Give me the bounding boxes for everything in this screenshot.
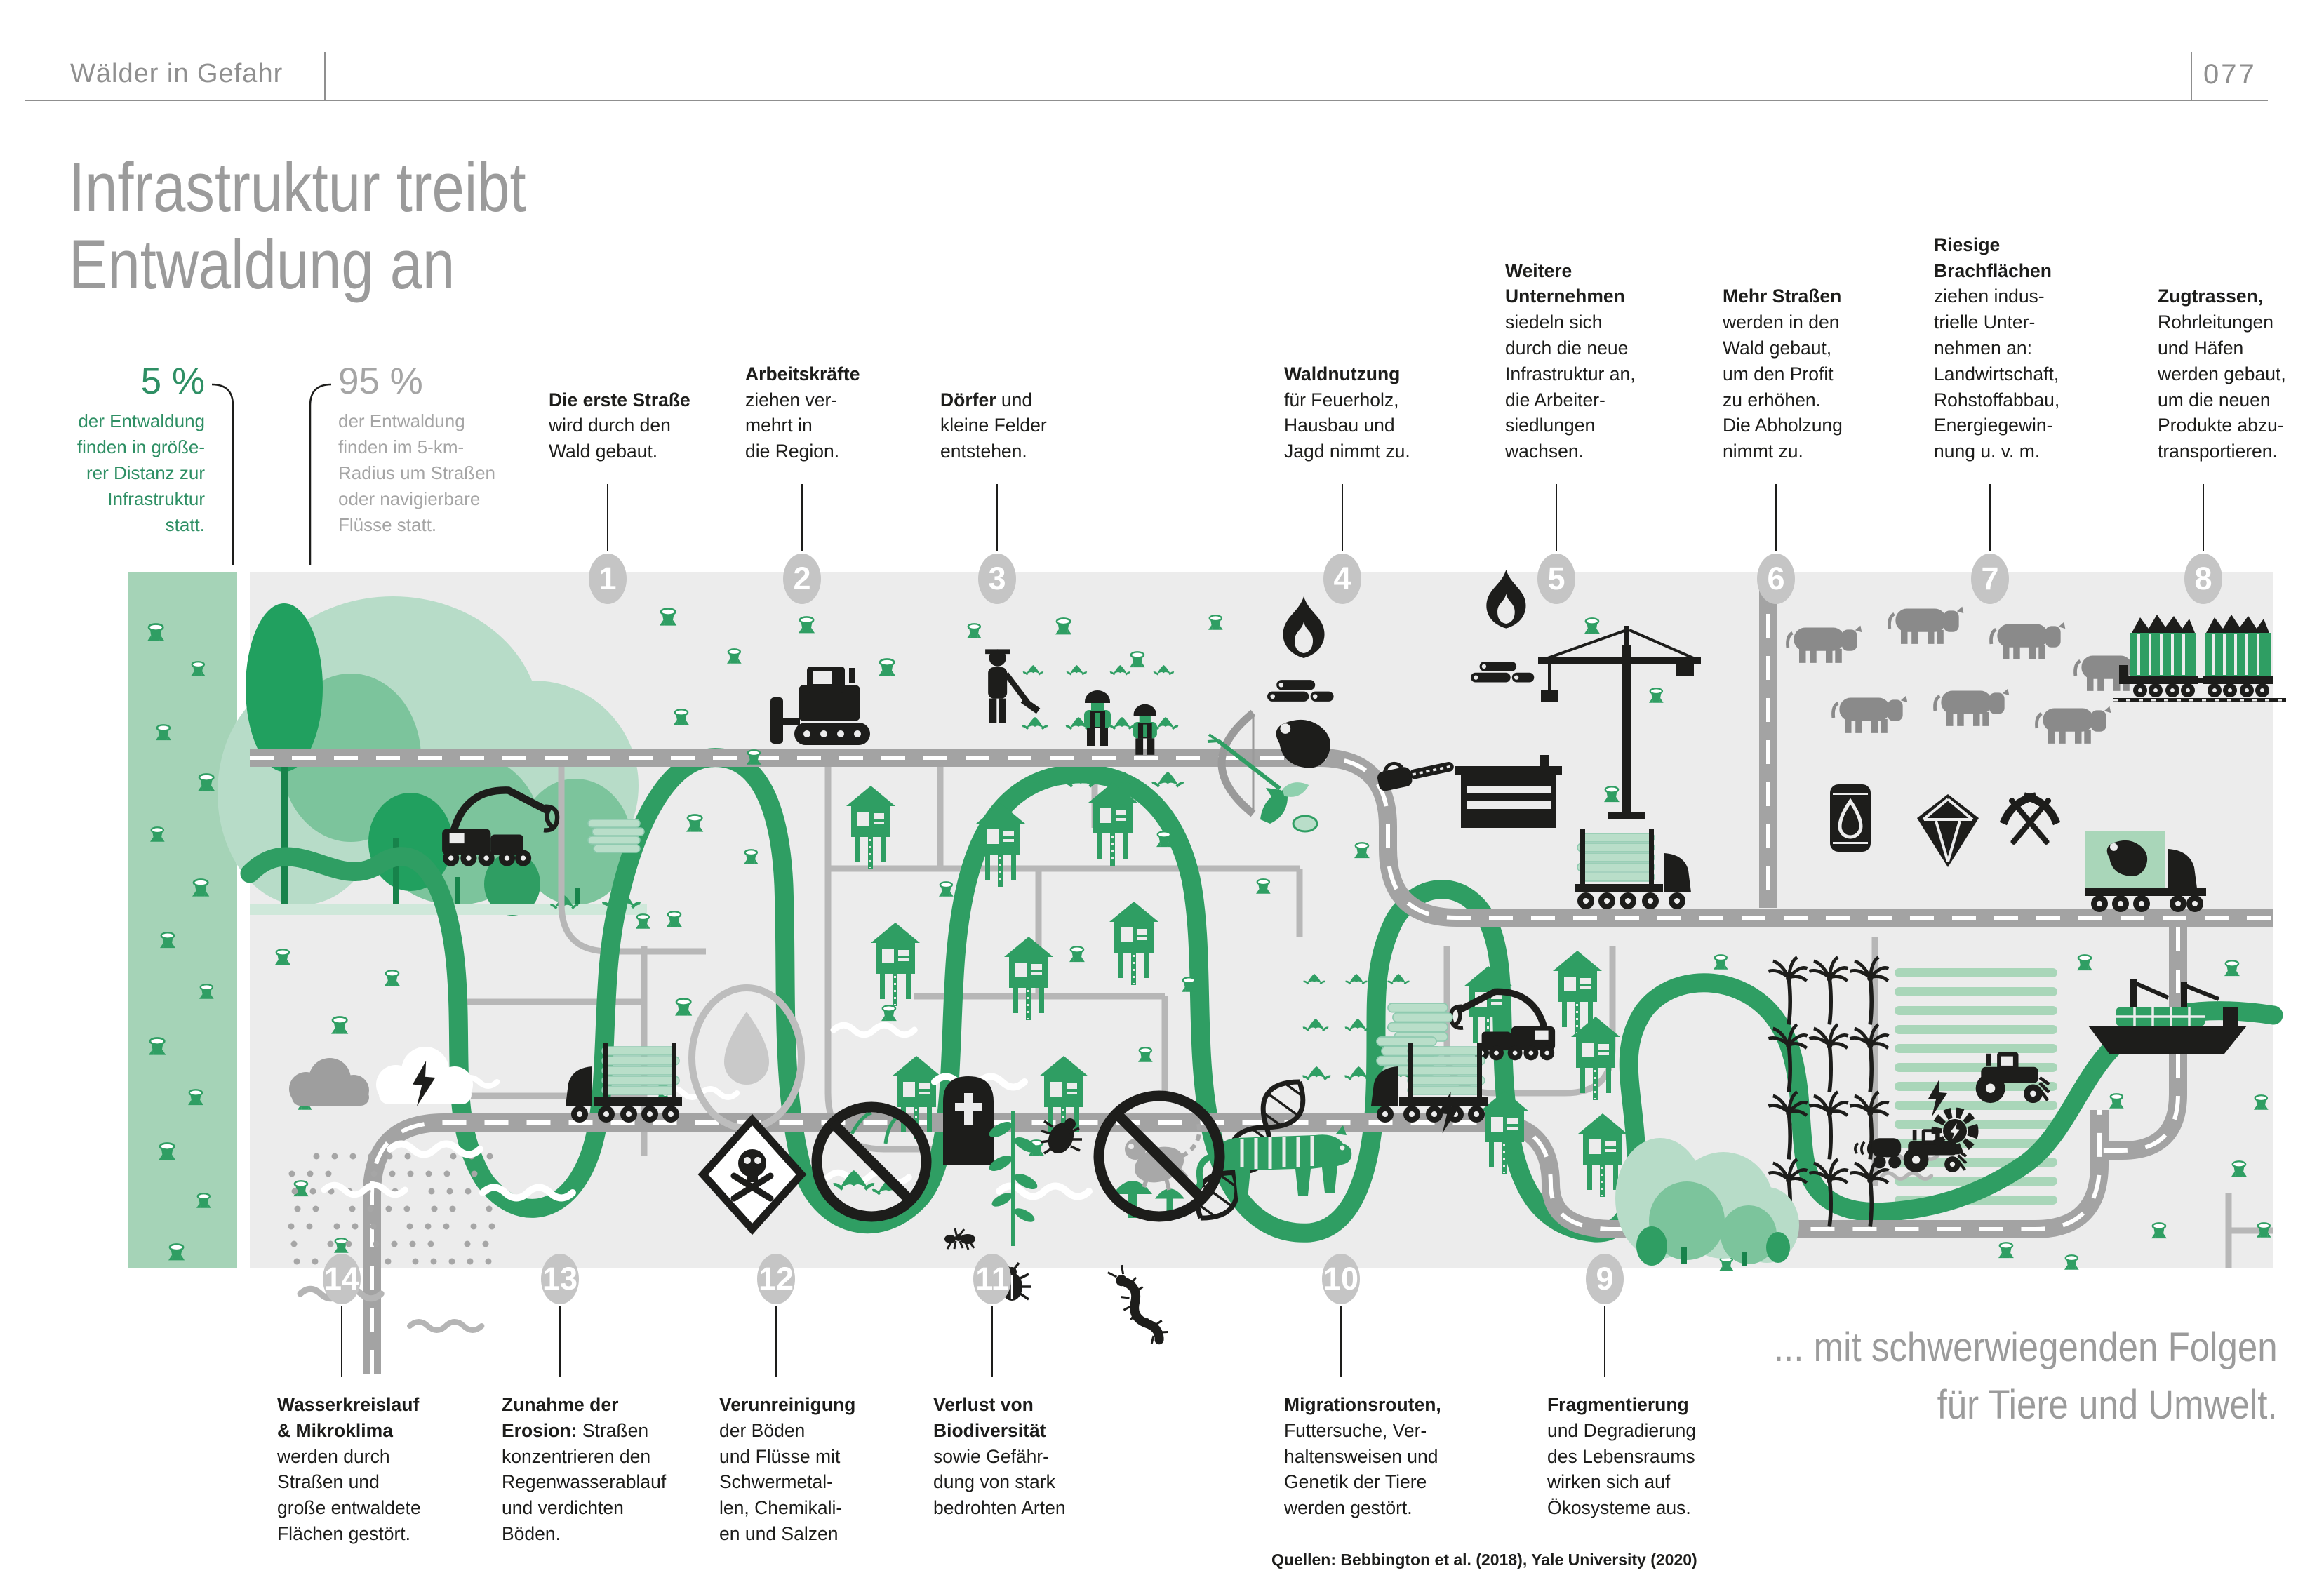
header-divider — [324, 52, 326, 101]
step-note-7: RiesigeBrachflächenziehen indus-trielle … — [1934, 232, 2059, 464]
step-connector-7 — [1989, 484, 1991, 551]
step-connector-3 — [996, 484, 998, 551]
stat-value: 95 % — [338, 362, 535, 401]
closing-line: für Tiere und Umwelt. — [1774, 1377, 2278, 1434]
header-divider — [2191, 52, 2192, 101]
oil-barrel-icon — [1830, 784, 1871, 852]
step-badge-12: 12 — [757, 1254, 795, 1304]
title-line: Infrastruktur treibt — [69, 149, 526, 226]
step-badge-11: 11 — [973, 1254, 1011, 1304]
step-note-4: Waldnutzungfür Feuerholz,Hausbau undJagd… — [1284, 361, 1410, 464]
step-connector-14 — [341, 1306, 342, 1377]
step-note-9: Fragmentierungund Degradierungdes Lebens… — [1547, 1392, 1696, 1521]
step-badge-4: 4 — [1323, 554, 1361, 604]
gravestone-icon — [943, 1076, 994, 1165]
step-note-10: Migrationsrouten,Futtersuche, Ver-halten… — [1284, 1392, 1441, 1521]
step-connector-12 — [775, 1306, 777, 1377]
cut-logs-icon — [1388, 1003, 1452, 1041]
source-note: Quellen: Bebbington et al. (2018), Yale … — [1271, 1551, 1697, 1569]
step-badge-9: 9 — [1586, 1254, 1624, 1304]
step-badge-7: 7 — [1971, 554, 2009, 604]
step-note-8: Zugtrassen,Rohrleitungenund Häfenwerden … — [2158, 283, 2286, 464]
step-badge-5: 5 — [1537, 554, 1575, 604]
stat-value: 5 % — [36, 362, 205, 401]
closing-statement: ... mit schwerwiegenden Folgen für Tiere… — [1774, 1319, 2278, 1434]
header-rule — [25, 100, 2268, 101]
step-connector-13 — [559, 1306, 561, 1377]
step-badge-1: 1 — [589, 554, 627, 604]
title-line: Entwaldung an — [69, 226, 526, 303]
cut-logs-icon — [588, 819, 644, 852]
step-connector-6 — [1775, 484, 1777, 551]
step-note-2: Arbeitskräfteziehen ver-mehrt indie Regi… — [745, 361, 860, 464]
step-note-13: Zunahme derErosion: Straßenkonzentrieren… — [502, 1392, 666, 1547]
step-badge-2: 2 — [783, 554, 821, 604]
step-badge-3: 3 — [978, 554, 1016, 604]
step-badge-13: 13 — [541, 1254, 579, 1304]
page-title: Infrastruktur treibt Entwaldung an — [69, 149, 526, 303]
step-note-3: Dörfer undkleine Felderentstehen. — [940, 387, 1047, 464]
step-note-5: WeitereUnternehmensiedeln sichdurch die … — [1505, 258, 1636, 464]
stat-connectors — [212, 384, 331, 565]
step-connector-8 — [2203, 484, 2204, 551]
centipede-icon — [1107, 1258, 1170, 1350]
section-label: Wälder in Gefahr — [70, 59, 283, 89]
closing-line: ... mit schwerwiegenden Folgen — [1774, 1319, 2278, 1377]
step-note-1: Die erste Straßewird durch denWald gebau… — [549, 387, 690, 464]
stat-near-infrastructure: 95 % der Entwaldungfinden im 5-km-Radius… — [338, 362, 535, 538]
step-note-11: Verlust vonBiodiversitätsowie Gefähr-dun… — [933, 1392, 1066, 1521]
step-badge-14: 14 — [323, 1254, 361, 1304]
step-note-14: Wasserkreislauf& Mikroklimawerden durchS… — [277, 1392, 421, 1547]
stat-description: der Entwaldungfinden in größe-rer Distan… — [36, 408, 205, 538]
step-connector-11 — [991, 1306, 993, 1377]
step-connector-2 — [801, 484, 803, 551]
wave-icon — [410, 1322, 481, 1330]
step-badge-10: 10 — [1322, 1254, 1360, 1304]
stat-description: der Entwaldungfinden im 5-km-Radius um S… — [338, 408, 535, 538]
step-connector-4 — [1342, 484, 1343, 551]
step-connector-1 — [607, 484, 608, 551]
step-note-12: Verunreinigungder Bödenund Flüsse mitSch… — [719, 1392, 855, 1547]
step-note-6: Mehr Straßenwerden in denWald gebaut,um … — [1723, 283, 1843, 464]
step-badge-6: 6 — [1757, 554, 1795, 604]
intact-forest-strip — [128, 572, 237, 1268]
step-connector-9 — [1604, 1306, 1605, 1377]
page-number: 077 — [2203, 59, 2257, 91]
step-connector-10 — [1340, 1306, 1342, 1377]
step-badge-8: 8 — [2184, 554, 2222, 604]
stat-far-from-infrastructure: 5 % der Entwaldungfinden in größe-rer Di… — [36, 362, 205, 538]
infographic-page: { "header": { "section_label": "Wälder i… — [0, 0, 2324, 1594]
step-connector-5 — [1556, 484, 1557, 551]
